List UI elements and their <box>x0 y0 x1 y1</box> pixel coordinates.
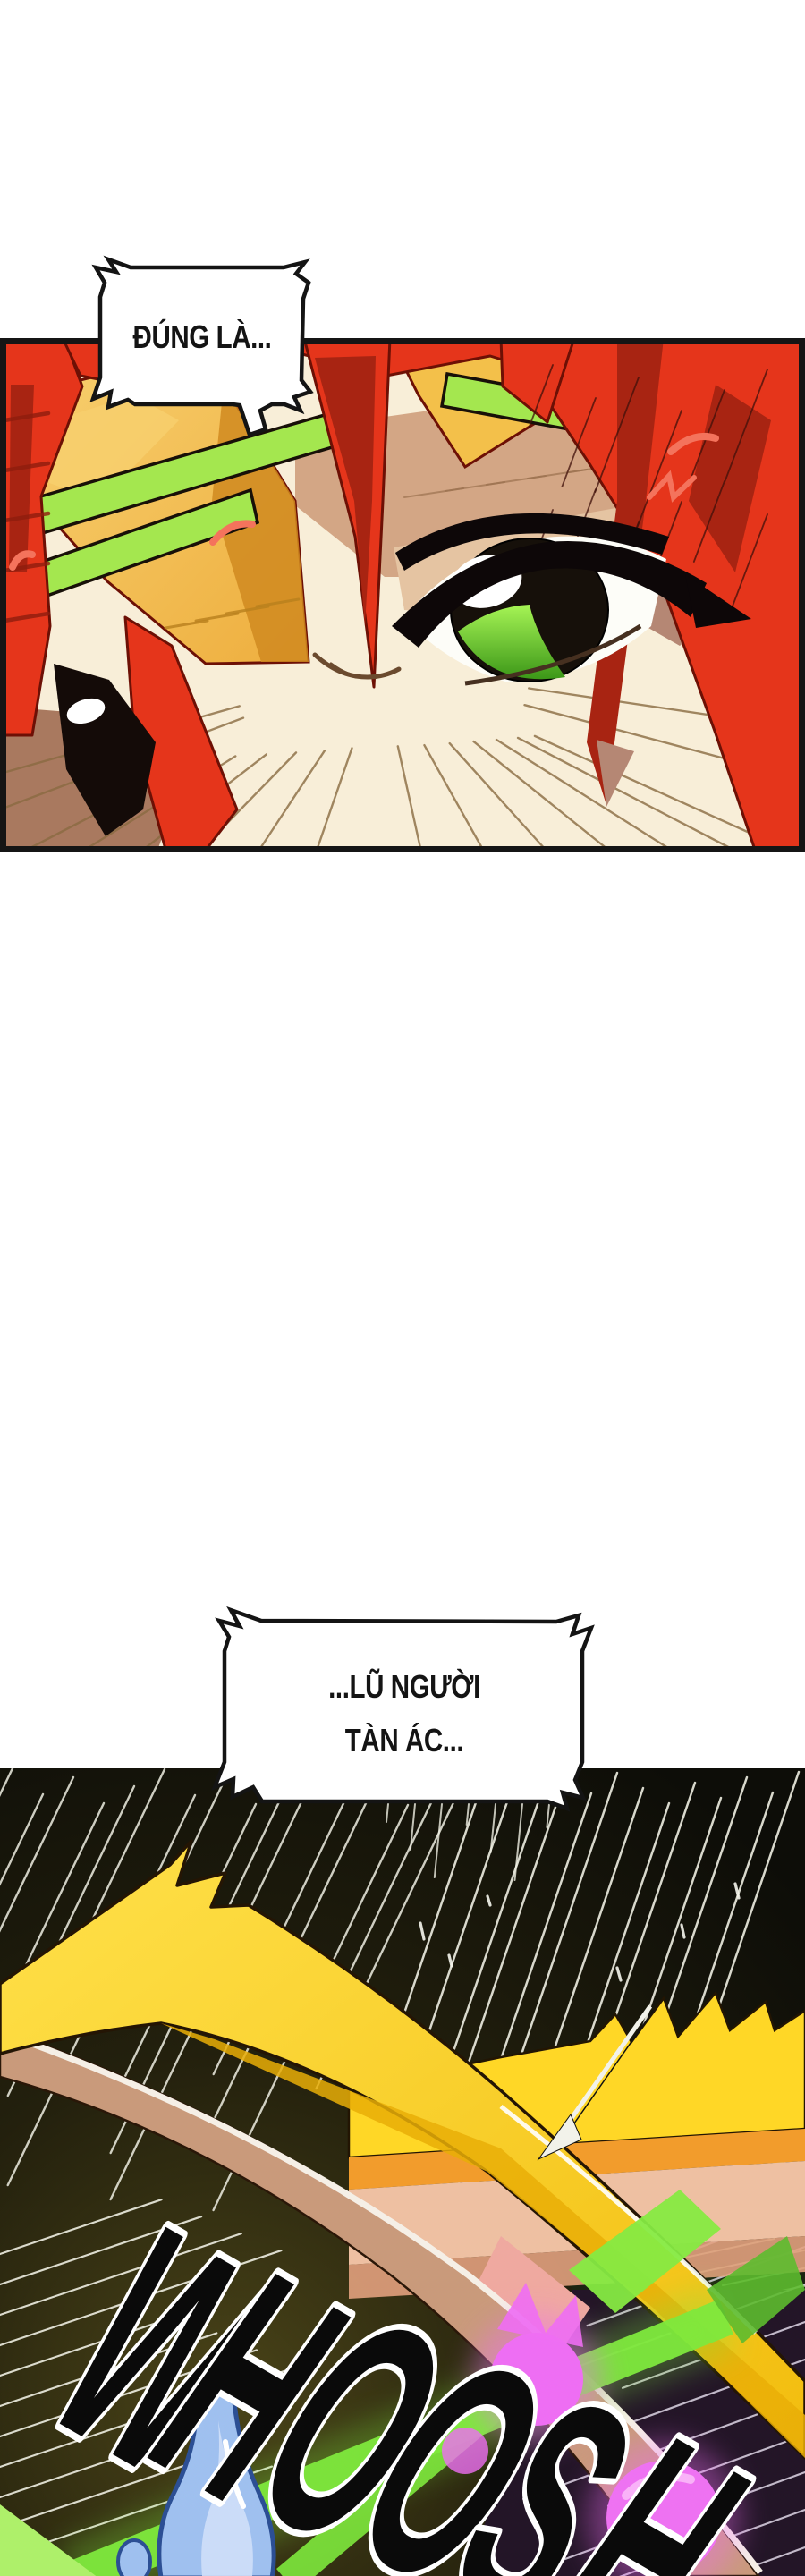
panel-whoosh-attack: WHOOSH <box>0 1768 805 2576</box>
bubble-2-line-2: TÀN ÁC... <box>345 1722 463 1758</box>
bubble-2-line-1: ...LŨ NGƯỜI <box>328 1668 480 1704</box>
comic-page: WHOOSH ĐÚNG LÀ... ...LŨ NGƯỜI TÀN ÁC... <box>0 0 805 2576</box>
speech-bubble-2: ...LŨ NGƯỜI TÀN ÁC... <box>201 1599 608 1823</box>
bubble-shape <box>215 1610 591 1809</box>
bubble-1-text: ĐÚNG LÀ... <box>133 318 272 354</box>
speech-bubble-1: ĐÚNG LÀ... <box>79 247 335 449</box>
